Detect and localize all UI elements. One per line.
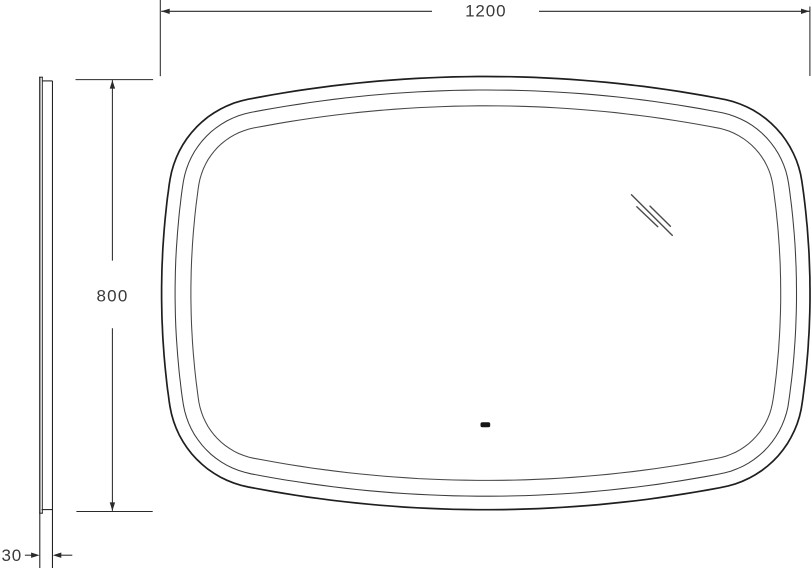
svg-text:800: 800 xyxy=(97,286,129,305)
svg-text:1200: 1200 xyxy=(465,2,506,21)
svg-text:30: 30 xyxy=(1,546,22,565)
